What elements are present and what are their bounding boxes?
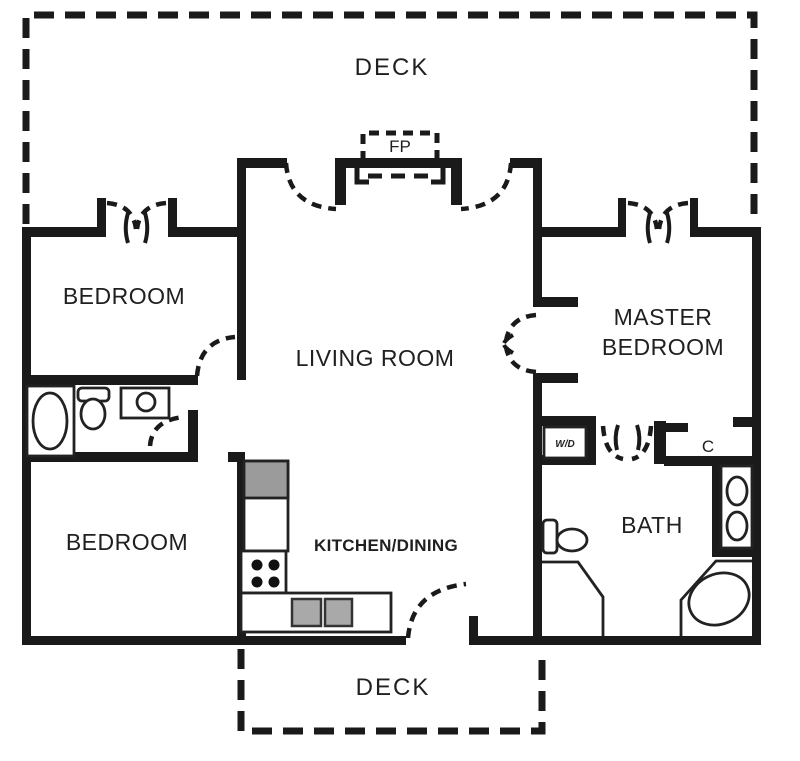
toilet-icon	[78, 388, 109, 429]
label-master-line1: MASTER	[614, 304, 713, 330]
fp-label: FP	[389, 137, 411, 156]
label-master-line2: BEDROOM	[602, 334, 724, 360]
refrigerator-icon	[244, 461, 288, 498]
floor-plan-svg: FP	[0, 0, 800, 761]
corner-tub-icon	[681, 561, 758, 636]
label-deck-bottom: DECK	[356, 674, 431, 701]
door-swing-living-deck-right	[461, 163, 511, 209]
wd-label: W/D	[555, 439, 574, 450]
toilet2-icon	[543, 520, 587, 553]
fireplace-icon: FP	[335, 133, 462, 205]
label-bedroom-top: BEDROOM	[63, 283, 185, 309]
door-swing-living-deck-left	[286, 163, 336, 209]
door-swing-bedroom-upper	[197, 337, 235, 376]
floor-plan: FP	[0, 0, 800, 761]
french-door-bedroom-top	[107, 203, 166, 243]
label-deck-top: DECK	[355, 54, 430, 81]
vanity-sinks-icon	[721, 466, 752, 548]
door-swing-kitchen-deck	[408, 584, 466, 638]
sink-icon	[121, 388, 169, 418]
door-swing-bathroom-left	[150, 417, 184, 446]
deck-outline-top	[26, 15, 754, 224]
french-door-master-top	[628, 203, 688, 243]
shower-icon	[542, 562, 603, 636]
stove-icon	[241, 551, 286, 593]
label-closet: C	[702, 437, 714, 456]
kitchen-sink-icon	[292, 599, 352, 626]
washer-dryer: W/D	[544, 427, 586, 458]
label-bath: BATH	[621, 512, 683, 538]
label-bedroom-bottom: BEDROOM	[66, 529, 188, 555]
bathtub-icon	[27, 386, 74, 456]
door-swing-bath-entry	[603, 425, 651, 459]
label-living-room: LIVING ROOM	[296, 345, 455, 371]
door-swing-master-entry	[504, 315, 536, 372]
label-kitchen: KITCHEN/DINING	[314, 536, 458, 555]
